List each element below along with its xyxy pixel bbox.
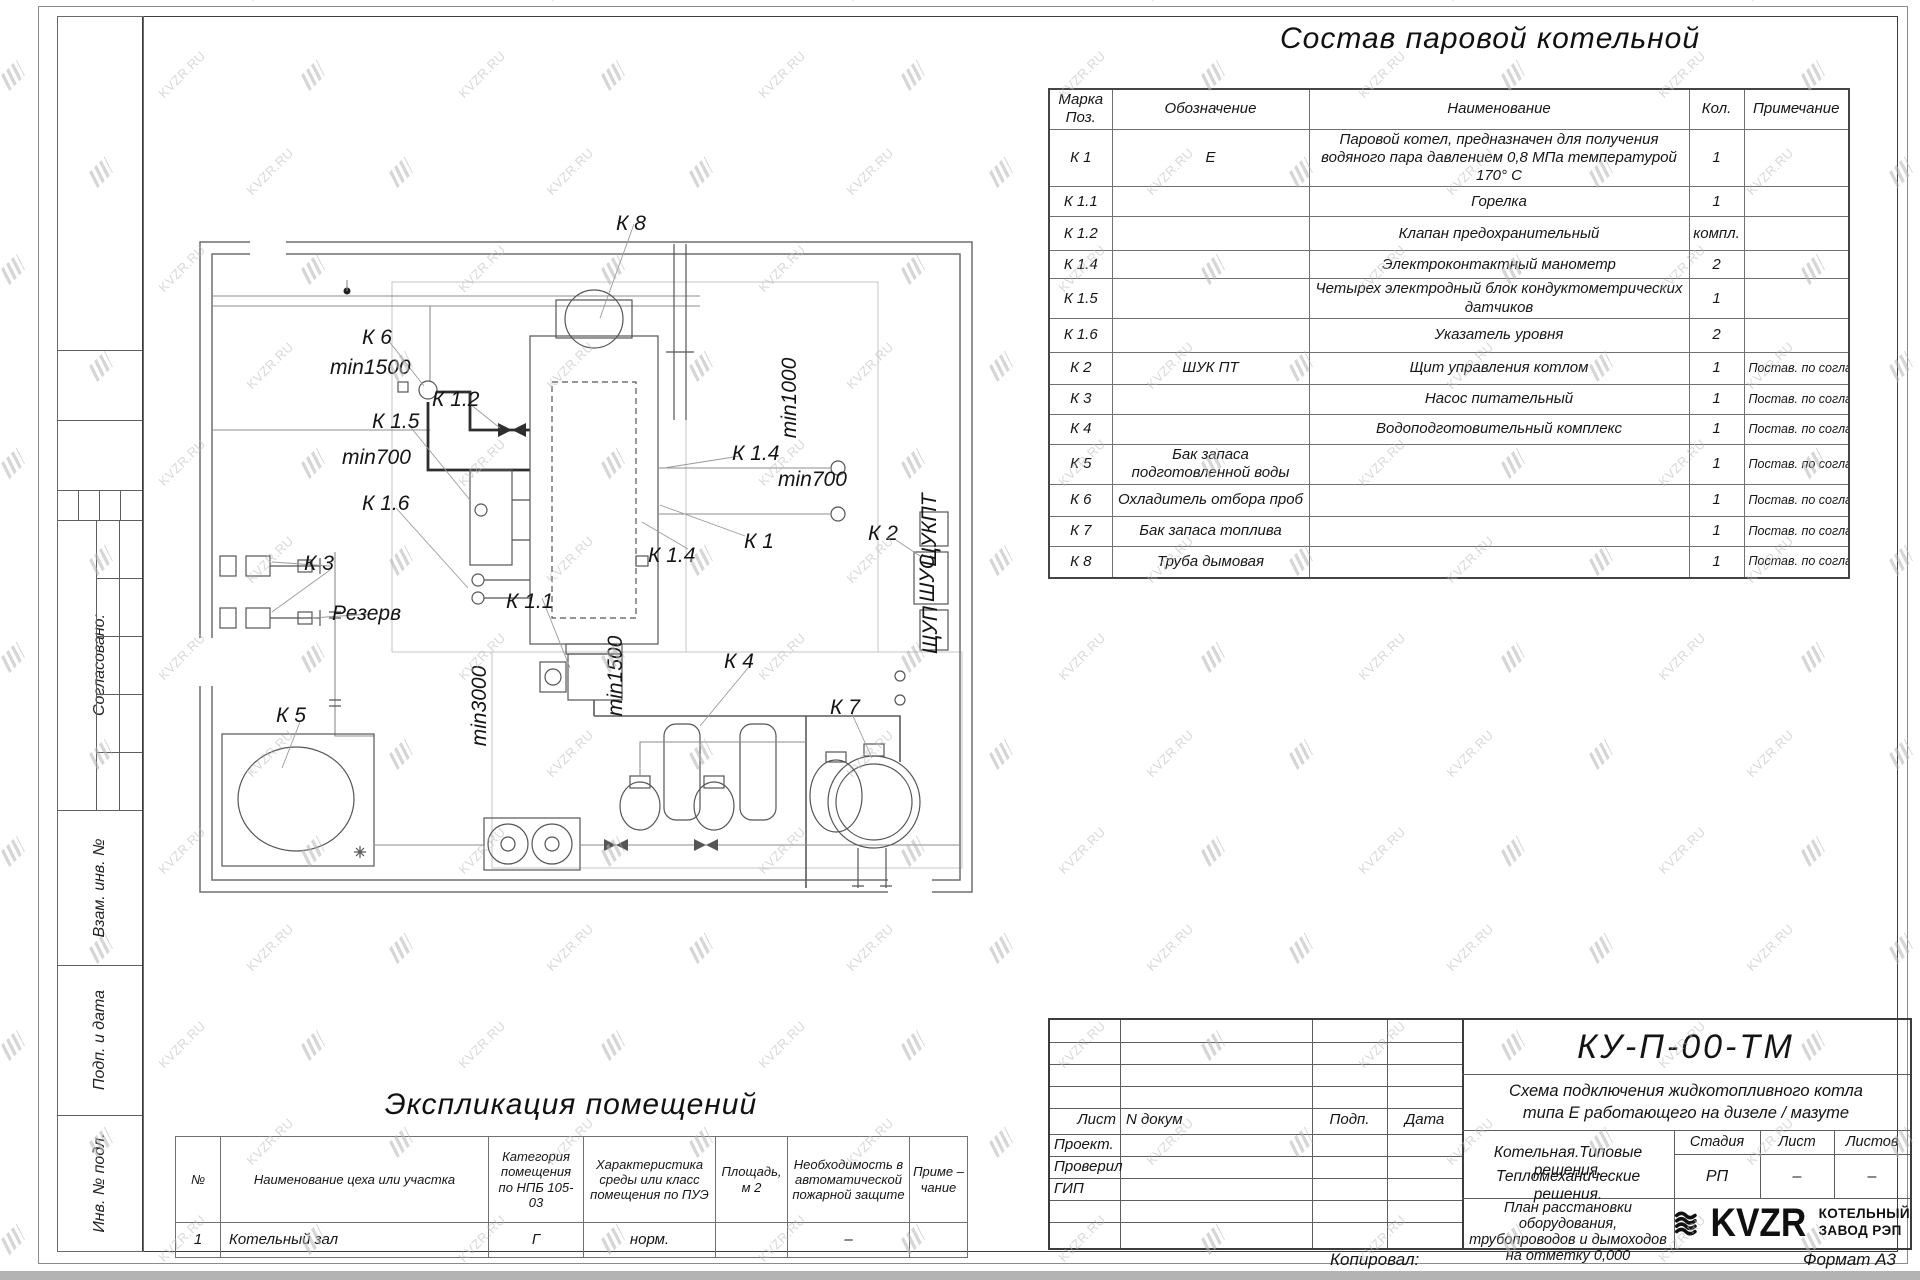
equip-cell-qty: 1: [1689, 353, 1744, 385]
tb-doc-title-line1: Схема подключения жидкотопливного котла: [1462, 1082, 1910, 1101]
equip-cell-qty: 1: [1689, 516, 1744, 546]
explication-header-cell: Необходимость в автоматической пожарной …: [788, 1137, 910, 1223]
plan-label-min700: min700: [778, 468, 847, 491]
explication-cell: [716, 1223, 788, 1258]
equip-cell-note: Постав. по согласов.: [1744, 445, 1849, 485]
equip-header-qty: Кол.: [1689, 89, 1744, 129]
equip-cell-name: [1309, 484, 1689, 516]
equip-cell-name: Паровой котел, предназначен для получени…: [1309, 129, 1689, 187]
equip-cell-qty: 1: [1689, 187, 1744, 217]
plan-label-k11: К 1.1: [506, 590, 553, 613]
explication-header-cell: Наименование цеха или участка: [221, 1137, 489, 1223]
equip-cell-name: Щит управления котлом: [1309, 353, 1689, 385]
equip-cell-designation: [1112, 319, 1309, 353]
equip-cell-mark: К 4: [1049, 415, 1112, 445]
explication-cell: Котельный зал: [221, 1223, 489, 1258]
explication-table-body: 1Котельный залГнорм.–: [176, 1223, 968, 1258]
equip-cell-mark: К 8: [1049, 546, 1112, 578]
tb-stage-header: Стадия: [1674, 1134, 1760, 1150]
equip-row: К 8Труба дымовая1Постав. по согласов.: [1049, 546, 1849, 578]
equip-cell-qty: 1: [1689, 385, 1744, 415]
equip-row: К 5Бак запаса подготовленной воды1Постав…: [1049, 445, 1849, 485]
equip-cell-name: [1309, 546, 1689, 578]
plan-label-k15: К 1.5: [372, 410, 420, 433]
tb-header-data: Дата: [1387, 1111, 1462, 1128]
tb-role-proveril: Проверил: [1054, 1158, 1123, 1175]
tb-header-podp: Подп.: [1312, 1111, 1387, 1128]
equip-cell-mark: К 6: [1049, 484, 1112, 516]
equip-cell-mark: К 3: [1049, 385, 1112, 415]
explication-title: Экспликация помещений: [175, 1088, 967, 1122]
equip-cell-mark: К 1.5: [1049, 279, 1112, 319]
equip-cell-designation: [1112, 415, 1309, 445]
explication-cell: –: [788, 1223, 910, 1258]
equip-cell-note: [1744, 187, 1849, 217]
plan-label-min1000: min1000: [778, 357, 801, 438]
plan-label-min3000: min3000: [468, 665, 491, 746]
kvzr-logo-icon: [1674, 1203, 1698, 1243]
equip-cell-name: Указатель уровня: [1309, 319, 1689, 353]
plan-label-k6: К 6: [362, 326, 392, 349]
equip-cell-name: Электроконтактный манометр: [1309, 251, 1689, 279]
tb-header-list: Лист: [1050, 1111, 1116, 1128]
panel-label: ШУС: [916, 553, 939, 602]
equip-cell-qty: 2: [1689, 251, 1744, 279]
equip-cell-qty: 2: [1689, 319, 1744, 353]
equip-cell-note: [1744, 217, 1849, 251]
tb-role-proekt: Проект.: [1054, 1136, 1114, 1153]
tb-sheet-header: Лист: [1760, 1134, 1834, 1150]
equip-cell-qty: 1: [1689, 129, 1744, 187]
control-panels-k2: ЩУКПТ ШУС ЩУП: [914, 491, 948, 654]
plan-label-min1500: min1500: [330, 356, 411, 379]
equip-cell-mark: К 1.1: [1049, 187, 1112, 217]
equipment-table-body: К 1ЕПаровой котел, предназначен для полу…: [1049, 129, 1849, 578]
equip-cell-designation: [1112, 187, 1309, 217]
explication-header-cell: Приме – чание: [910, 1137, 968, 1223]
equip-cell-designation: Бак запаса топлива: [1112, 516, 1309, 546]
plan-label-min700: min700: [342, 446, 411, 469]
equip-row: К 1.6Указатель уровня2: [1049, 319, 1849, 353]
equip-cell-designation: Бак запаса подготовленной воды: [1112, 445, 1309, 485]
tb-sheets-header: Листов: [1834, 1134, 1910, 1150]
kvzr-caption-line2: ЗАВОД РЭП: [1819, 1223, 1902, 1238]
equip-header-mark: Марка Поз.: [1049, 89, 1112, 129]
equip-cell-name: Клапан предохранительный: [1309, 217, 1689, 251]
equip-cell-note: Постав. по согласов.: [1744, 353, 1849, 385]
equip-cell-note: Постав. по согласов.: [1744, 385, 1849, 415]
tb-document-code: КУ-П-00-ТМ: [1462, 1028, 1910, 1067]
equip-cell-mark: К 2: [1049, 353, 1112, 385]
equip-cell-designation: Е: [1112, 129, 1309, 187]
equip-cell-qty: 1: [1689, 546, 1744, 578]
equip-header-designation: Обозначение: [1112, 89, 1309, 129]
tb-header-ndocum: N докум: [1120, 1111, 1226, 1128]
equip-cell-note: [1744, 279, 1849, 319]
plan-label-k14: К 1.4: [648, 544, 695, 567]
equip-cell-name: Четырех электродный блок кондуктометриче…: [1309, 279, 1689, 319]
format-label: Формат А3: [1756, 1250, 1896, 1270]
tb-org-line2: Тепломеханические решения.: [1462, 1168, 1674, 1204]
panel-k15: [470, 470, 530, 565]
plan-label-k3: К 3: [304, 552, 334, 575]
explication-header-cell: Характеристика среды или класс помещения…: [584, 1137, 716, 1223]
title-block: Лист N докум Подп. Дата Проект. Проверил…: [1048, 1018, 1912, 1250]
plan-label-k2: К 2: [868, 522, 898, 545]
equip-cell-note: [1744, 251, 1849, 279]
plan-label-k12: К 1.2: [432, 388, 480, 411]
clearance-zones: [392, 282, 962, 868]
equip-row: К 7Бак запаса топлива1Постав. по согласо…: [1049, 516, 1849, 546]
equip-cell-designation: Охладитель отбора проб: [1112, 484, 1309, 516]
explication-table: №Наименование цеха или участкаКатегория …: [175, 1136, 968, 1258]
equip-cell-designation: [1112, 279, 1309, 319]
explication-cell: Г: [489, 1223, 584, 1258]
plan-labels: К 8 К 6 min1500 К 1.2 К 1.5 min700 К 1.6…: [276, 212, 898, 746]
tb-role-gip: ГИП: [1054, 1180, 1084, 1197]
explication-header-row: №Наименование цеха или участкаКатегория …: [176, 1137, 968, 1223]
equip-cell-note: [1744, 129, 1849, 187]
equip-cell-designation: Труба дымовая: [1112, 546, 1309, 578]
drawing-title: Состав паровой котельной: [1230, 22, 1750, 56]
equip-cell-mark: К 1.6: [1049, 319, 1112, 353]
plan-label-k1: К 1: [744, 530, 774, 553]
tb-sheet-value: –: [1760, 1168, 1834, 1186]
explication-cell: норм.: [584, 1223, 716, 1258]
equip-cell-qty: компл.: [1689, 217, 1744, 251]
plan-label-k16: К 1.6: [362, 492, 410, 515]
water-tank-k5: [222, 734, 374, 866]
equip-cell-note: Постав. по согласов.: [1744, 546, 1849, 578]
equip-row: К 4Водоподготовительный комплекс1Постав.…: [1049, 415, 1849, 445]
kvzr-caption-line1: КОТЕЛЬНЫЙ: [1819, 1206, 1910, 1221]
equip-cell-note: Постав. по согласов.: [1744, 516, 1849, 546]
equip-row: К 1.2Клапан предохранительныйкомпл.: [1049, 217, 1849, 251]
plan-label-k8: К 8: [616, 212, 646, 235]
equip-cell-qty: 1: [1689, 484, 1744, 516]
equip-cell-mark: К 5: [1049, 445, 1112, 485]
equip-cell-name: [1309, 445, 1689, 485]
equip-cell-qty: 1: [1689, 445, 1744, 485]
equip-cell-note: Постав. по согласов.: [1744, 484, 1849, 516]
equip-cell-name: Горелка: [1309, 187, 1689, 217]
equip-cell-designation: [1112, 385, 1309, 415]
explication-cell: [910, 1223, 968, 1258]
plan-label-k5: К 5: [276, 704, 306, 727]
explication-cell: 1: [176, 1223, 221, 1258]
equip-cell-name: Водоподготовительный комплекс: [1309, 415, 1689, 445]
explication-header-cell: Площадь, м 2: [716, 1137, 788, 1223]
tb-doc-title-line2: типа Е работающего на дизеле / мазуте: [1462, 1104, 1910, 1123]
equip-cell-mark: К 1.4: [1049, 251, 1112, 279]
equip-row: К 1.5Четырех электродный блок кондуктоме…: [1049, 279, 1849, 319]
panel-label: ЩУП: [919, 605, 942, 654]
equip-cell-qty: 1: [1689, 279, 1744, 319]
plan-label-k7: К 7: [830, 696, 861, 719]
explication-row: 1Котельный залГнорм.–: [176, 1223, 968, 1258]
equip-cell-designation: [1112, 251, 1309, 279]
plan-label-min1500: min1500: [604, 635, 627, 716]
equip-cell-qty: 1: [1689, 415, 1744, 445]
explication-header-cell: Категория помещения по НПБ 105-03: [489, 1137, 584, 1223]
equip-cell-designation: [1112, 217, 1309, 251]
equip-header-name: Наименование: [1309, 89, 1689, 129]
equip-cell-name: Насос питательный: [1309, 385, 1689, 415]
kvzr-logo: KVZR КОТЕЛЬНЫЙ ЗАВОД РЭП: [1674, 1198, 1910, 1248]
equip-row: К 1.1Горелка1: [1049, 187, 1849, 217]
equip-row: К 6Охладитель отбора проб1Постав. по сог…: [1049, 484, 1849, 516]
tb-sheet-name: План расстановки оборудования, трубопров…: [1464, 1201, 1672, 1265]
equip-cell-mark: К 1: [1049, 129, 1112, 187]
copied-by-label: Копировал:: [1330, 1250, 1419, 1270]
tb-sheets-value: –: [1834, 1168, 1910, 1186]
equip-cell-note: Постав. по согласов.: [1744, 415, 1849, 445]
equip-row: К 1ЕПаровой котел, предназначен для полу…: [1049, 129, 1849, 187]
sheet-edge-shadow: [0, 1271, 1920, 1280]
equip-row: К 3Насос питательный1Постав. по согласов…: [1049, 385, 1849, 415]
chimney-k8: [666, 244, 694, 420]
equip-row: К 1.4Электроконтактный манометр2: [1049, 251, 1849, 279]
equip-cell-mark: К 7: [1049, 516, 1112, 546]
equip-cell-mark: К 1.2: [1049, 217, 1112, 251]
tb-stage-value: РП: [1674, 1168, 1760, 1186]
equipment-table: Марка Поз. Обозначение Наименование Кол.…: [1048, 88, 1850, 579]
explication-header-cell: №: [176, 1137, 221, 1223]
equip-row: К 2ШУК ПТЩит управления котлом1Постав. п…: [1049, 353, 1849, 385]
plan-label-rezerv: Резерв: [332, 602, 401, 625]
kvzr-logo-text: KVZR: [1710, 1201, 1806, 1246]
kvzr-logo-caption: КОТЕЛЬНЫЙ ЗАВОД РЭП: [1819, 1206, 1910, 1240]
equip-cell-note: [1744, 319, 1849, 353]
plan-label-k4: К 4: [724, 650, 754, 673]
plan-label-k14: К 1.4: [732, 442, 779, 465]
equip-cell-name: [1309, 516, 1689, 546]
equip-cell-designation: ШУК ПТ: [1112, 353, 1309, 385]
equip-header-note: Примечание: [1744, 89, 1849, 129]
